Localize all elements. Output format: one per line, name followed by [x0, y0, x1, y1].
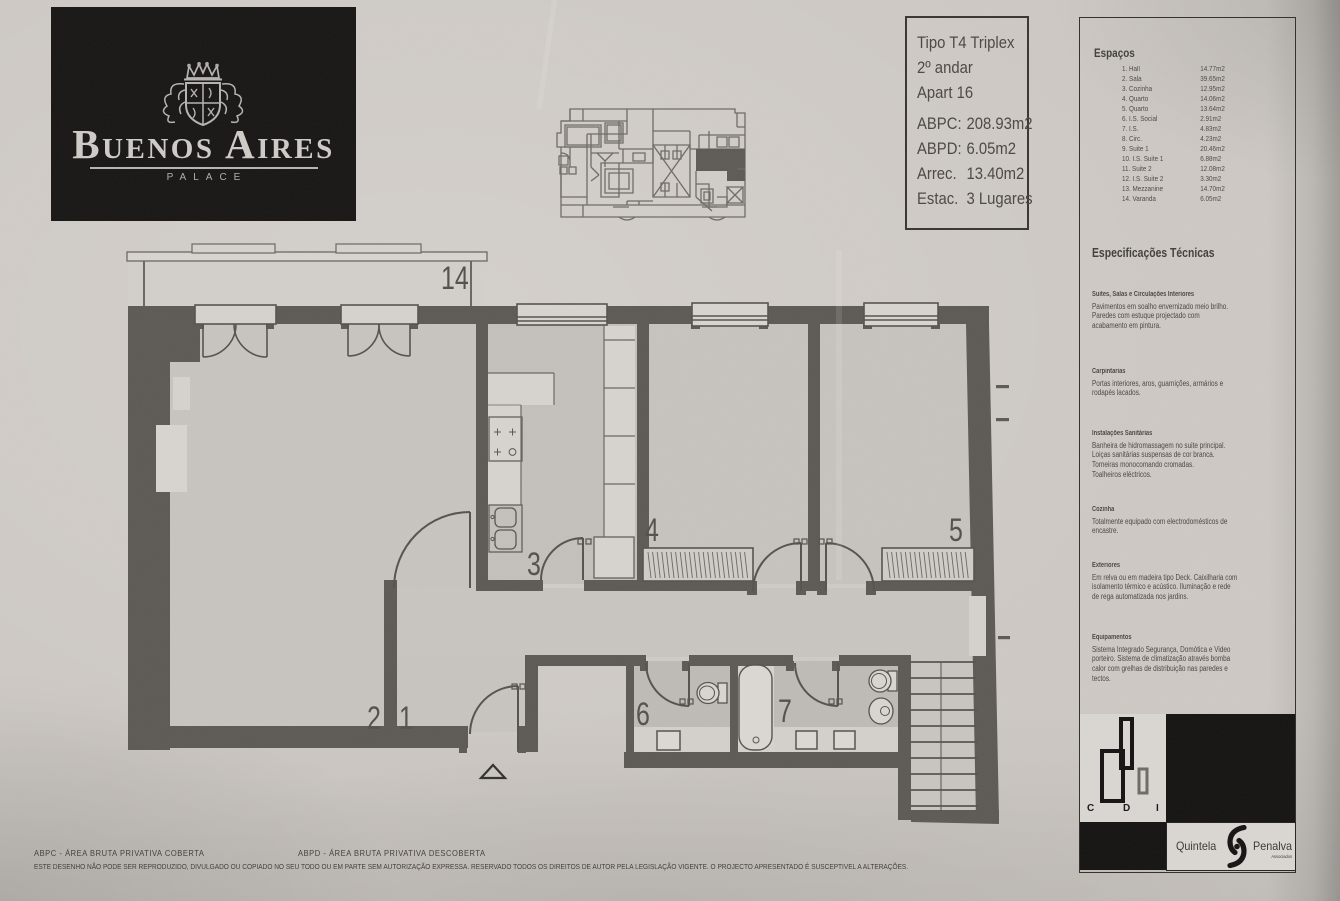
svg-text:5: 5: [949, 513, 963, 549]
svg-text:C: C: [1087, 803, 1094, 814]
svg-text:6: 6: [636, 697, 650, 733]
svg-text:7: 7: [778, 694, 792, 730]
svg-text:14: 14: [441, 261, 469, 297]
svg-text:2: 2: [367, 701, 381, 737]
svg-text:4: 4: [645, 513, 659, 549]
svg-text:D: D: [1123, 803, 1130, 814]
svg-text:3: 3: [527, 547, 541, 583]
svg-text:I: I: [1156, 803, 1159, 814]
svg-text:1: 1: [399, 701, 413, 737]
